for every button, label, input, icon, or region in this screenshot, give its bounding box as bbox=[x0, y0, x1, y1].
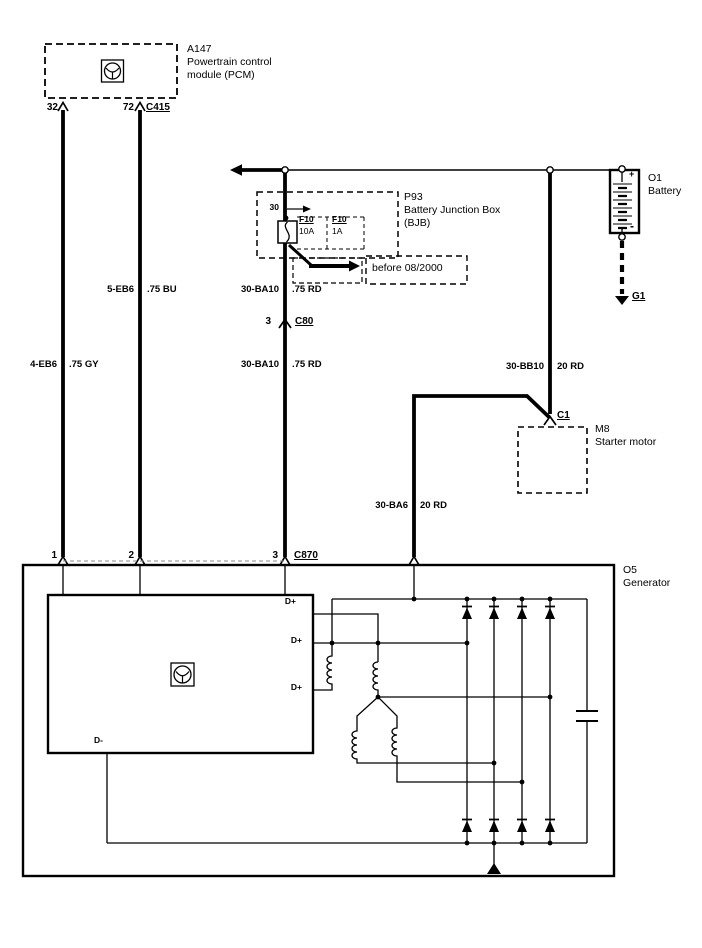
pcm-box bbox=[45, 44, 177, 111]
wire-4eb6-code-label: 4-EB6 bbox=[7, 360, 57, 371]
pcm-pin32-connector bbox=[58, 103, 68, 112]
pcm-name-line2: module (PCM) bbox=[187, 69, 255, 81]
wiring-diagram-canvas bbox=[0, 0, 702, 948]
regulator-component-icon bbox=[171, 663, 194, 686]
stator-coil-1 bbox=[373, 662, 378, 697]
starter-box bbox=[518, 417, 587, 494]
battery-name-label: Battery bbox=[648, 185, 681, 197]
junction-dots bbox=[330, 597, 553, 846]
battery-plus-label: + bbox=[629, 169, 634, 179]
generator-pin-3-label: 3 bbox=[258, 550, 278, 562]
wire-30ba6-code-label: 30-BA6 bbox=[353, 501, 408, 512]
c80-pin-label: 3 bbox=[251, 316, 271, 328]
generator-internal-wiring bbox=[63, 565, 598, 873]
capacitor-symbol bbox=[576, 599, 598, 843]
stator-coil-3 bbox=[378, 697, 522, 782]
pcm-pin-32-label: 32 bbox=[28, 102, 58, 114]
bjb-id-label: P93 bbox=[404, 191, 423, 203]
pcm-component-icon bbox=[102, 60, 124, 82]
regulator-dplus-label-3: D+ bbox=[282, 683, 302, 693]
battery-minus-label: - bbox=[630, 220, 634, 234]
bjb-name-line1: Battery Junction Box bbox=[404, 204, 500, 216]
junction-circle bbox=[547, 167, 553, 173]
terminal-30-arrow bbox=[287, 206, 311, 213]
starter-name-label: Starter motor bbox=[595, 436, 656, 448]
stator-coil-2 bbox=[352, 697, 494, 763]
fuse-symbol bbox=[278, 221, 297, 243]
wire-30ba10-spec-label: .75 RD bbox=[292, 285, 322, 296]
generator-pin-1-label: 1 bbox=[37, 550, 57, 562]
generator-id-label: O5 bbox=[623, 564, 637, 576]
wire-30ba6 bbox=[414, 396, 549, 557]
generator-pin-2-label: 2 bbox=[114, 550, 134, 562]
starter-id-label: M8 bbox=[595, 423, 610, 435]
wiring-diagram: A147 Powertrain control module (PCM) 32 … bbox=[0, 0, 702, 948]
battery-neg-terminal bbox=[619, 234, 625, 240]
wire-30bb10-spec-label: 20 RD bbox=[557, 362, 584, 373]
battery-ground-wire bbox=[615, 241, 629, 305]
junction-circle bbox=[282, 167, 288, 173]
regulator-dplus-label-2: D+ bbox=[282, 636, 302, 646]
wire4-entry-chevron bbox=[409, 557, 419, 566]
rectifier-diodes bbox=[462, 607, 555, 833]
ground-symbol-g1 bbox=[615, 296, 629, 305]
c1-connector-chevron bbox=[544, 417, 556, 426]
fuse-b-id-label: F10 bbox=[332, 215, 347, 225]
fuse-a-id-label: F10 bbox=[299, 215, 314, 225]
battery-symbol bbox=[610, 170, 639, 233]
generator-ground-symbol bbox=[487, 863, 501, 874]
terminal-30-label: 30 bbox=[255, 203, 279, 213]
pcm-pin72-connector bbox=[135, 103, 145, 112]
generator-box bbox=[23, 557, 614, 877]
wire-30ba10-code-label: 30-BA10 bbox=[219, 285, 279, 296]
wire-30ba6-spec-label: 20 RD bbox=[420, 501, 447, 512]
regulator-box bbox=[48, 595, 313, 753]
regulator-dplus-label-1: D+ bbox=[276, 597, 296, 607]
connector-c80-label: C80 bbox=[295, 316, 313, 328]
battery-id-label: O1 bbox=[648, 172, 662, 184]
rotor-field-coil bbox=[313, 599, 332, 690]
fuse-a-rating-label: 10A bbox=[299, 227, 314, 237]
wire-30bb10-code-label: 30-BB10 bbox=[484, 362, 544, 373]
before-note-label: before 08/2000 bbox=[372, 262, 443, 274]
wire-30ba10-code-label-2: 30-BA10 bbox=[219, 360, 279, 371]
left-arrowhead bbox=[230, 164, 242, 176]
variant-arrow-box bbox=[293, 258, 362, 283]
wire-5eb6-code-label: 5-EB6 bbox=[84, 285, 134, 296]
pcm-pin-72-label: 72 bbox=[104, 102, 134, 114]
regulator-dminus-label: D- bbox=[94, 736, 103, 746]
ground-g1-label: G1 bbox=[632, 291, 645, 303]
connector-c415-label: C415 bbox=[146, 102, 170, 114]
fuse-b-rating-label: 1A bbox=[332, 227, 342, 237]
pcm-id-label: A147 bbox=[187, 43, 212, 55]
bjb-name-line2: (BJB) bbox=[404, 217, 430, 229]
junction-dot bbox=[284, 216, 289, 221]
pcm-name-line1: Powertrain control bbox=[187, 56, 272, 68]
wire-30ba10-spec-label-2: .75 RD bbox=[292, 360, 322, 371]
wire-5eb6-spec-label: .75 BU bbox=[147, 285, 177, 296]
generator-name-label: Generator bbox=[623, 577, 670, 589]
wire-4eb6-spec-label: .75 GY bbox=[69, 360, 99, 371]
battery-pos-terminal bbox=[619, 166, 625, 172]
connector-c870-label: C870 bbox=[294, 550, 318, 562]
connector-c1-label: C1 bbox=[557, 410, 570, 422]
